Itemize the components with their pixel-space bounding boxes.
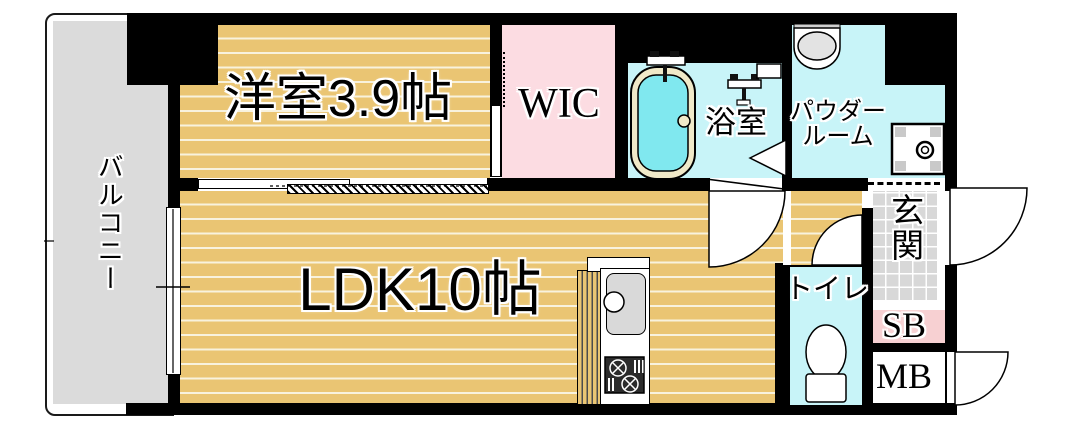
wall-segment <box>168 375 180 403</box>
wall-segment <box>490 23 502 105</box>
ldk-label: LDK10帖 <box>220 258 620 321</box>
western-room-label: 洋室3.9帖 <box>188 72 488 127</box>
powder-entrance-dashed-opening <box>868 182 940 185</box>
wall-segment <box>862 208 873 403</box>
powder-room-label: パウダー ルーム <box>768 99 908 149</box>
floor-plan: 洋室3.9帖 WIC 浴室 パウダー ルーム LDK10帖 トイレ 玄関 SB … <box>0 0 1077 433</box>
entrance-door-arc <box>950 188 1027 265</box>
meter-box-door-arc <box>955 352 1008 405</box>
wic-door <box>490 105 502 177</box>
balcony-label: バルコニー <box>95 138 122 308</box>
wic-door-swing-dotted <box>503 52 505 107</box>
wall-segment <box>487 178 710 191</box>
wall-segment <box>168 178 198 191</box>
balcony-window <box>166 207 181 375</box>
wall-segment <box>783 178 868 191</box>
doorway-threshold <box>783 191 791 265</box>
wall-segment <box>615 25 628 191</box>
sliding-door-icon <box>287 184 489 194</box>
powder-room-label-line1: パウダー <box>768 99 908 124</box>
entrance-label: 玄関 <box>887 188 922 268</box>
wall-segment <box>945 265 957 352</box>
wall-segment <box>885 13 957 85</box>
wall-segment <box>615 25 792 63</box>
meter-box-label: MB <box>873 358 935 396</box>
powder-room-label-line2: ルーム <box>768 124 908 149</box>
shoe-box-label: SB <box>873 307 935 345</box>
toilet-label: トイレ <box>757 274 897 303</box>
powder-room-floor-upper <box>792 23 885 85</box>
wall-segment <box>127 13 957 25</box>
wic-label: WIC <box>509 82 609 126</box>
